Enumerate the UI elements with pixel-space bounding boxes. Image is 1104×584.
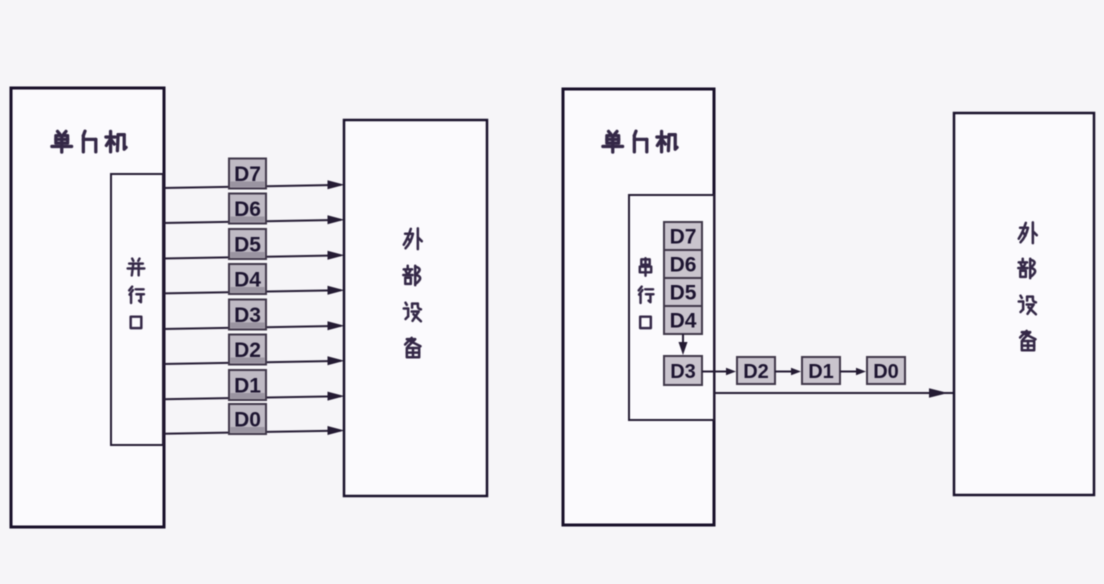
svg-text:D1: D1 xyxy=(234,375,261,398)
svg-text:D4: D4 xyxy=(670,310,697,333)
svg-text:D0: D0 xyxy=(873,361,899,383)
svg-text:D7: D7 xyxy=(670,226,697,249)
svg-text:D3: D3 xyxy=(670,361,696,383)
svg-text:D1: D1 xyxy=(808,361,834,383)
svg-text:D3: D3 xyxy=(234,304,261,327)
svg-text:D2: D2 xyxy=(234,339,261,362)
svg-text:D5: D5 xyxy=(234,234,261,257)
svg-text:D0: D0 xyxy=(234,409,261,432)
svg-text:D2: D2 xyxy=(743,361,769,383)
svg-text:D6: D6 xyxy=(670,254,697,277)
svg-text:D4: D4 xyxy=(234,269,261,292)
svg-text:D5: D5 xyxy=(670,282,697,305)
svg-text:D6: D6 xyxy=(234,198,261,221)
svg-text:D7: D7 xyxy=(234,163,261,186)
